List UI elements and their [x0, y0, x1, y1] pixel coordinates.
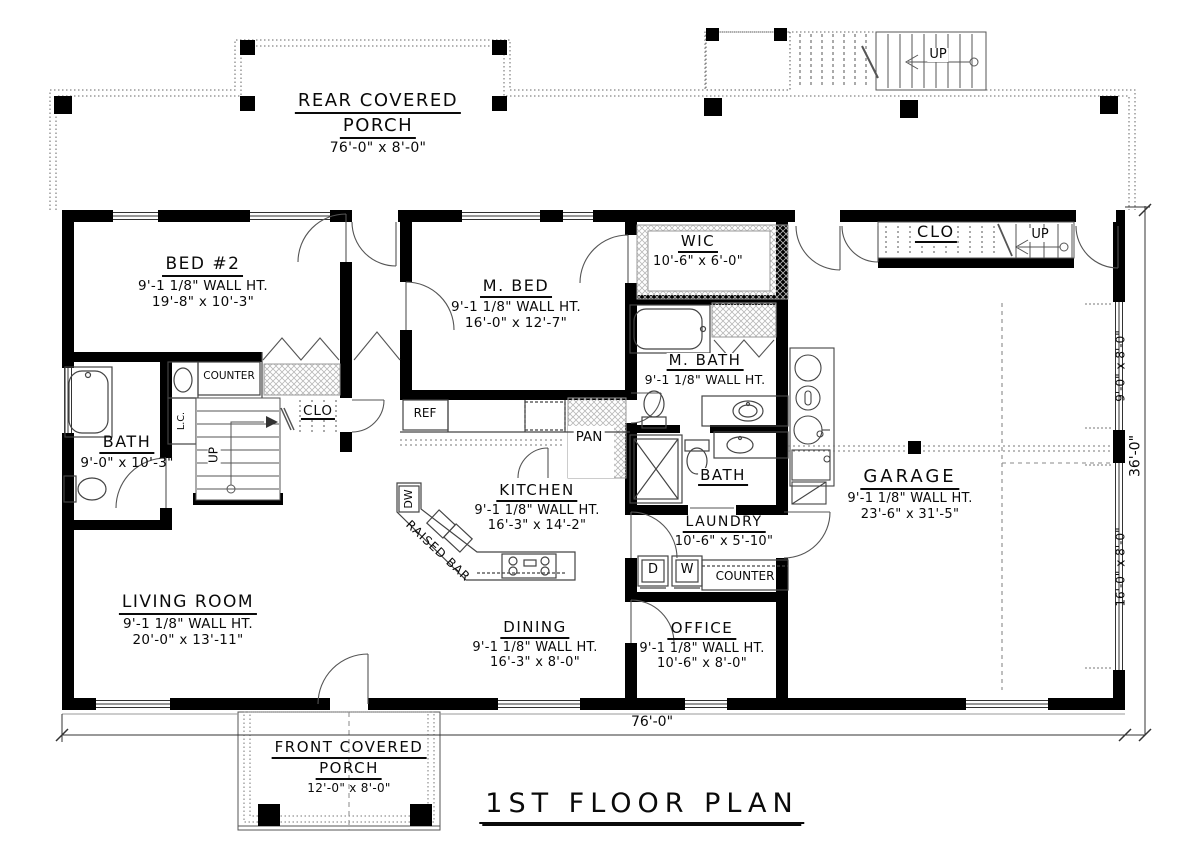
room-label-dining: DINING 9'-1 1/8" WALL HT. 16'-3" x 8'-0" [472, 620, 597, 670]
bath-dims: 9'-0" x 10'-3" [80, 456, 173, 470]
dishwasher-label: DW [403, 489, 415, 508]
wic-dims: 10'-6" x 6'-0" [653, 255, 743, 269]
room-label-garage: GARAGE 9'-1 1/8" WALL HT. 23'-6" x 31'-5… [847, 468, 972, 521]
room-label-bed2: BED #2 9'-1 1/8" WALL HT. 19'-8" x 10'-3… [138, 256, 268, 309]
bed2-dims: 19'-8" x 10'-3" [138, 295, 268, 309]
room-label-rear-porch: REAR COVERED PORCH 76'-0" x 8'-0" [295, 92, 461, 155]
room-label-office: OFFICE 9'-1 1/8" WALL HT. 10'-6" x 8'-0" [639, 621, 764, 671]
bed2-wall-ht: 9'-1 1/8" WALL HT. [138, 279, 268, 293]
living-wall-ht: 9'-1 1/8" WALL HT. [119, 617, 257, 631]
washer-label: W [681, 563, 694, 577]
garage-door-large-dim: 16'-0" x 8'-0" [1115, 527, 1128, 606]
dining-name: DINING [500, 620, 569, 639]
living-name: LIVING ROOM [119, 594, 257, 615]
room-label-master-bath: M. BATH 9'-1 1/8" WALL HT. [643, 353, 768, 386]
up-porch-stairs-label: UP [927, 48, 948, 62]
room-label-front-porch: FRONT COVERED PORCH 12'-0" x 8'-0" [272, 740, 427, 794]
front-porch-name-line2: PORCH [316, 761, 382, 780]
rear-porch-name-line1: REAR COVERED [295, 92, 461, 114]
front-porch-dims: 12'-0" x 8'-0" [272, 782, 427, 795]
overall-depth-dim: 36'-0" [1129, 435, 1144, 477]
up-garage-stairs-label: UP [1029, 228, 1050, 242]
linen-closet-label: L.C. [177, 412, 187, 430]
pantry-label: PAN [574, 430, 605, 444]
office-name: OFFICE [668, 621, 736, 640]
master-bath-name: M. BATH [667, 353, 744, 371]
room-label-master-bed: M. BED 9'-1 1/8" WALL HT. 16'-0" x 12'-7… [451, 278, 581, 330]
room-label-hall-bath: BATH [698, 468, 748, 486]
garage-dims: 23'-6" x 31'-5" [847, 508, 972, 522]
laundry-counter-label: COUNTER [716, 570, 775, 583]
master-bed-wall-ht: 9'-1 1/8" WALL HT. [451, 300, 581, 314]
wic-name: WIC [678, 234, 718, 253]
sheet-title: 1ST FLOOR PLAN [479, 790, 804, 824]
room-label-wic: WIC 10'-6" x 6'-0" [653, 234, 743, 268]
hall-bath-name: BATH [698, 468, 748, 486]
master-bath-wall-ht: 9'-1 1/8" WALL HT. [643, 373, 768, 386]
dining-wall-ht: 9'-1 1/8" WALL HT. [472, 641, 597, 655]
rear-porch-name-line2: PORCH [340, 117, 416, 139]
garage-closet-label: CLO [915, 224, 957, 243]
kitchen-dims: 16'-3" x 14'-2" [474, 519, 599, 533]
master-bed-name: M. BED [480, 278, 552, 298]
hall-closet-label: CLO [301, 404, 335, 420]
floor-plan-page: REAR COVERED PORCH 76'-0" x 8'-0" FRONT … [0, 0, 1200, 844]
overall-width-dim: 76'-0" [631, 715, 673, 730]
rear-porch-dims: 76'-0" x 8'-0" [295, 141, 461, 156]
dining-dims: 16'-3" x 8'-0" [472, 656, 597, 670]
office-wall-ht: 9'-1 1/8" WALL HT. [639, 642, 764, 656]
kitchen-wall-ht: 9'-1 1/8" WALL HT. [474, 504, 599, 518]
room-label-laundry: LAUNDRY 10'-6" x 5'-10" [675, 515, 774, 548]
hall-counter-label: COUNTER [203, 371, 254, 382]
dryer-label: D [648, 563, 658, 577]
office-dims: 10'-6" x 8'-0" [639, 657, 764, 671]
living-dims: 20'-0" x 13'-11" [119, 633, 257, 647]
garage-wall-ht: 9'-1 1/8" WALL HT. [847, 492, 972, 506]
laundry-dims: 10'-6" x 5'-10" [675, 535, 774, 549]
room-label-bath: BATH 9'-0" x 10'-3" [80, 434, 173, 470]
laundry-name: LAUNDRY [682, 515, 765, 533]
front-porch-name-line1: FRONT COVERED [272, 740, 427, 759]
bath-name: BATH [100, 434, 154, 454]
garage-door-small-dim: 9'-0" x 8'-0" [1115, 330, 1128, 402]
master-bed-dims: 16'-0" x 12'-7" [451, 316, 581, 330]
garage-name: GARAGE [860, 468, 959, 490]
ref-label: REF [414, 407, 437, 420]
up-center-stairs-label: UP [208, 445, 221, 465]
bed2-name: BED #2 [163, 256, 244, 277]
kitchen-name: KITCHEN [496, 483, 578, 502]
room-label-kitchen: KITCHEN 9'-1 1/8" WALL HT. 16'-3" x 14'-… [474, 483, 599, 533]
room-label-living: LIVING ROOM 9'-1 1/8" WALL HT. 20'-0" x … [119, 594, 257, 647]
